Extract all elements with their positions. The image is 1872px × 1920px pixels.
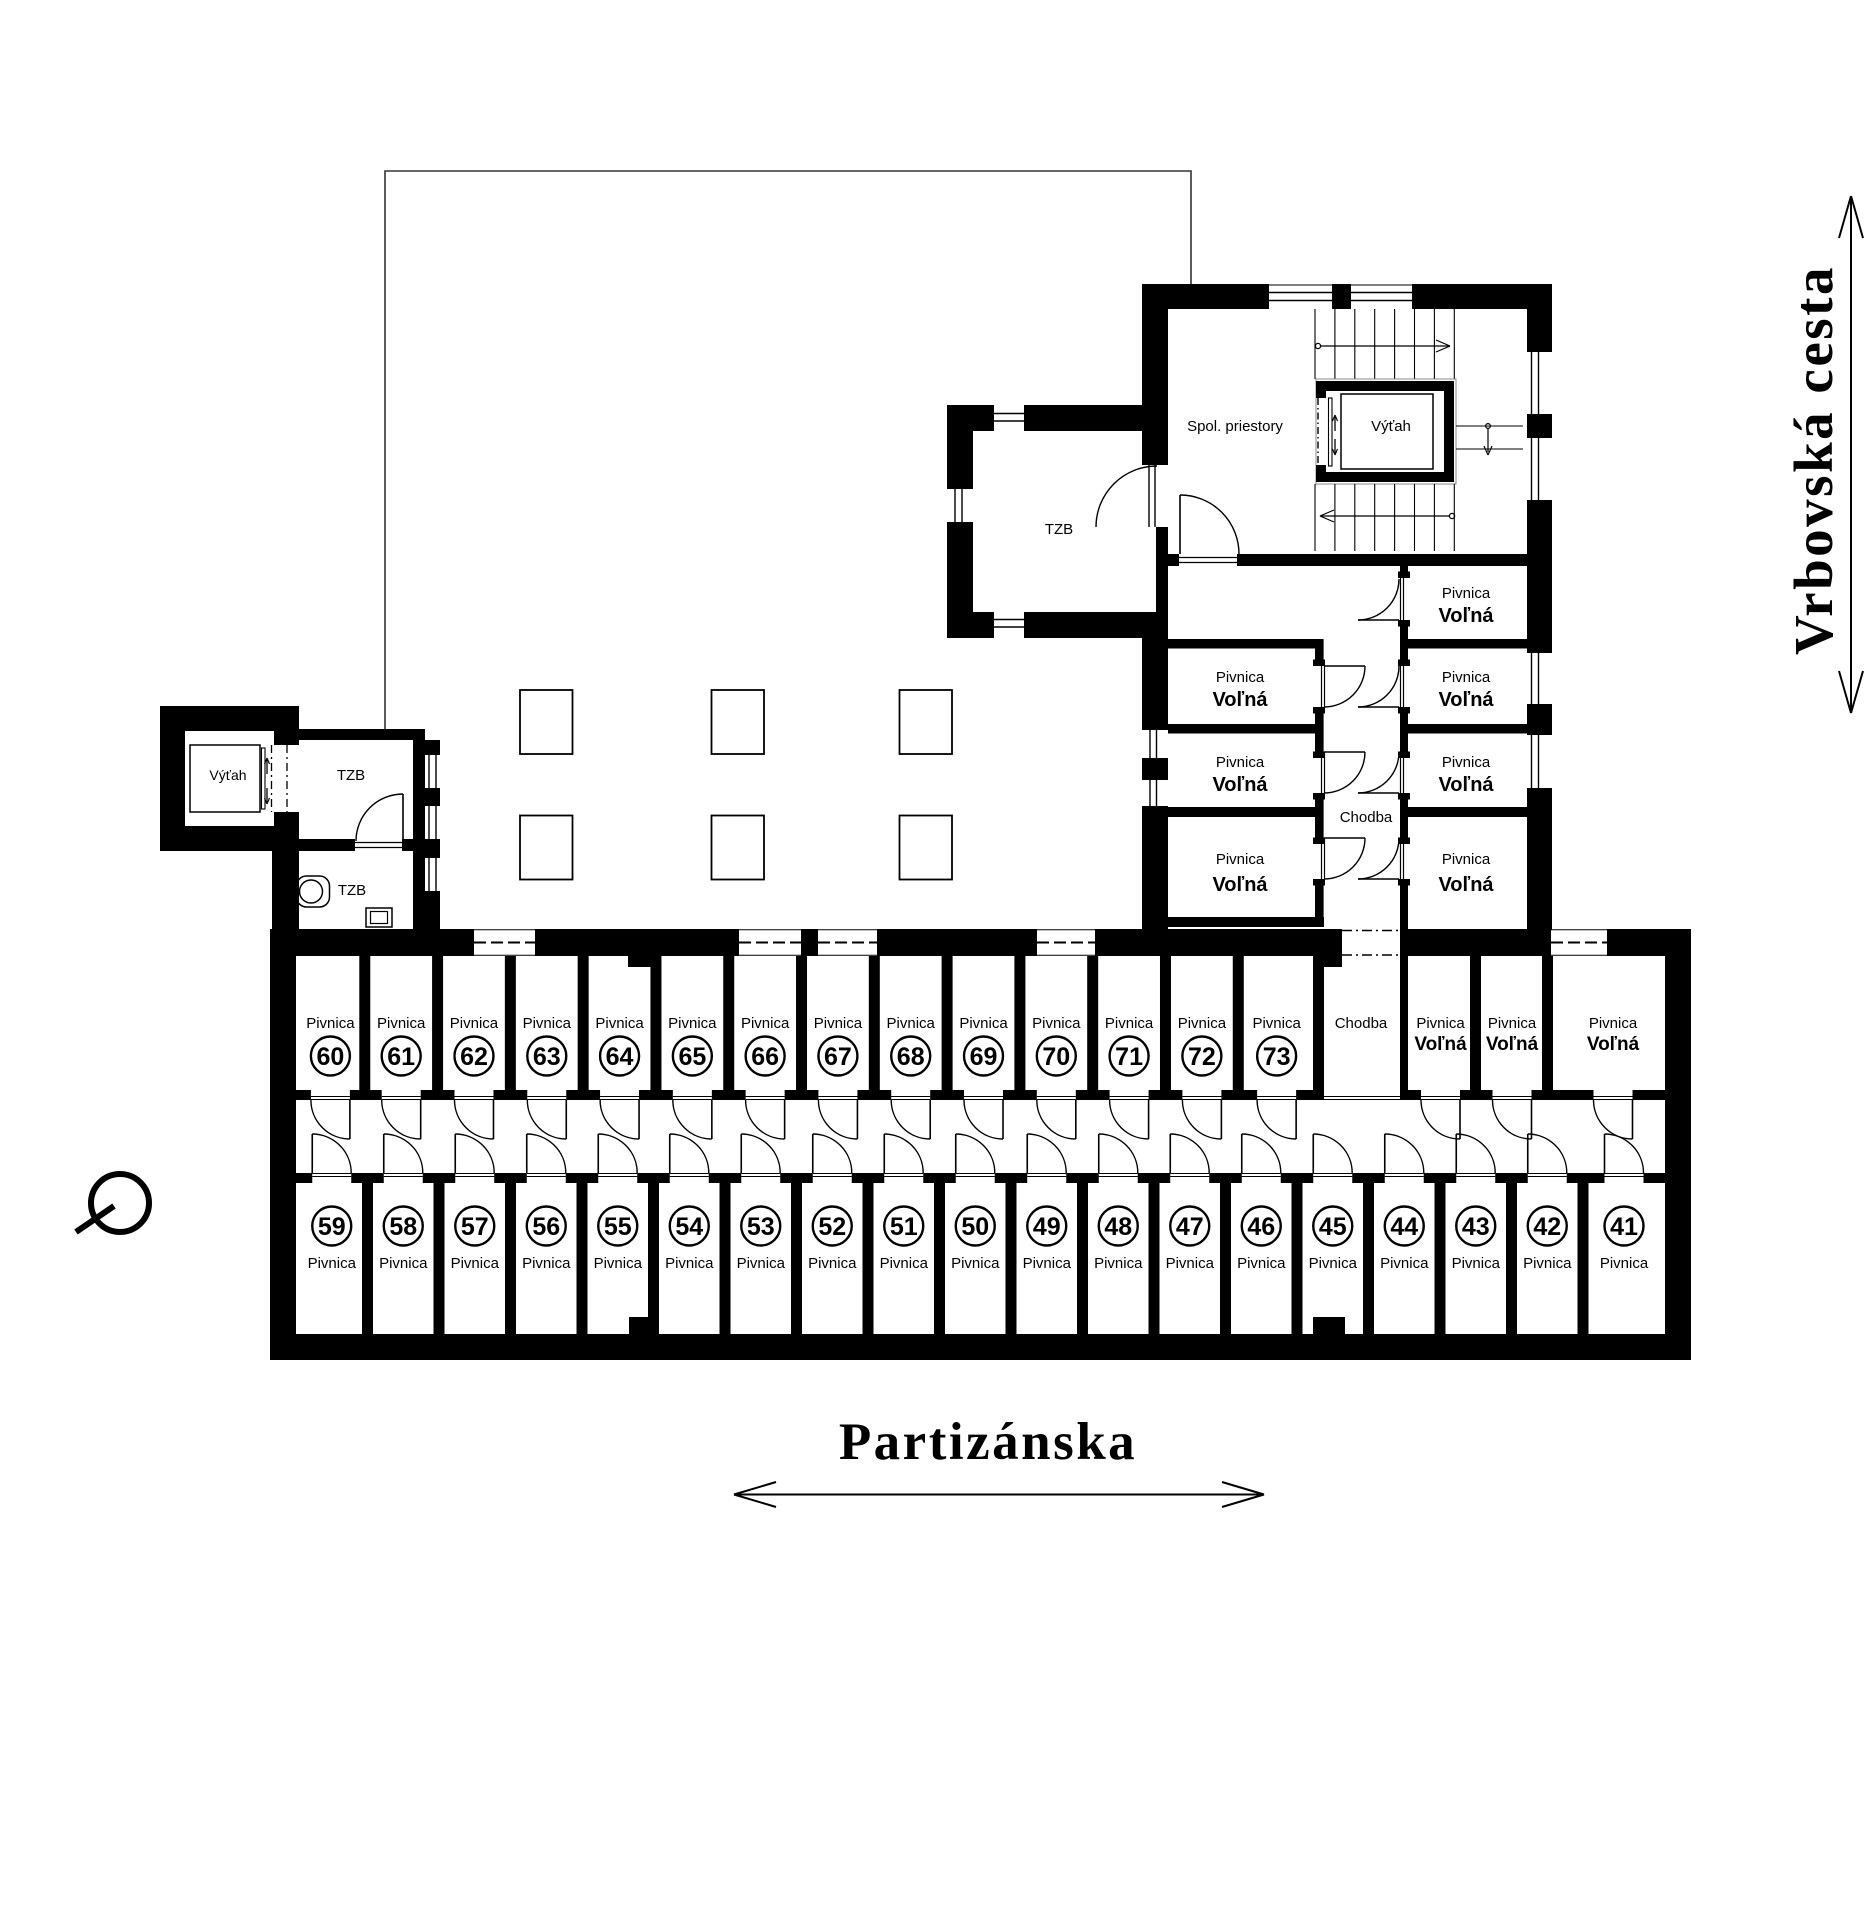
- svg-text:Voľná: Voľná: [1212, 689, 1268, 711]
- svg-text:45: 45: [1319, 1213, 1347, 1241]
- svg-text:66: 66: [751, 1043, 779, 1071]
- svg-text:51: 51: [890, 1213, 918, 1241]
- svg-text:Pivnica: Pivnica: [1032, 1015, 1081, 1032]
- svg-text:69: 69: [970, 1043, 998, 1071]
- svg-text:47: 47: [1176, 1213, 1204, 1241]
- svg-text:50: 50: [961, 1213, 989, 1241]
- svg-text:Voľná: Voľná: [1438, 605, 1494, 627]
- svg-text:Vrbovská cesta: Vrbovská cesta: [1783, 265, 1844, 655]
- svg-text:54: 54: [675, 1213, 703, 1241]
- svg-text:Pivnica: Pivnica: [880, 1255, 929, 1272]
- svg-text:Výťah: Výťah: [209, 767, 246, 783]
- svg-text:Pivnica: Pivnica: [522, 1255, 571, 1272]
- svg-text:Pivnica: Pivnica: [1309, 1255, 1358, 1272]
- svg-text:55: 55: [604, 1213, 632, 1241]
- svg-text:Voľná: Voľná: [1438, 874, 1494, 896]
- svg-text:Pivnica: Pivnica: [451, 1255, 500, 1272]
- svg-text:43: 43: [1462, 1213, 1490, 1241]
- svg-text:Pivnica: Pivnica: [1094, 1255, 1143, 1272]
- svg-text:Pivnica: Pivnica: [1452, 1255, 1501, 1272]
- svg-text:Pivnica: Pivnica: [379, 1255, 428, 1272]
- svg-text:Pivnica: Pivnica: [887, 1015, 936, 1032]
- svg-text:64: 64: [606, 1043, 634, 1071]
- svg-text:Pivnica: Pivnica: [1166, 1255, 1215, 1272]
- svg-text:41: 41: [1610, 1213, 1638, 1241]
- svg-text:73: 73: [1263, 1043, 1291, 1071]
- svg-text:67: 67: [824, 1043, 852, 1071]
- svg-text:Pivnica: Pivnica: [1442, 585, 1491, 602]
- svg-text:Chodba: Chodba: [1340, 809, 1393, 826]
- svg-text:Voľná: Voľná: [1486, 1034, 1539, 1055]
- svg-text:TZB: TZB: [338, 882, 366, 899]
- svg-text:Pivnica: Pivnica: [808, 1255, 857, 1272]
- svg-text:Pivnica: Pivnica: [665, 1255, 714, 1272]
- svg-text:Pivnica: Pivnica: [594, 1255, 643, 1272]
- svg-text:Pivnica: Pivnica: [450, 1015, 499, 1032]
- svg-text:Pivnica: Pivnica: [668, 1015, 717, 1032]
- svg-text:Pivnica: Pivnica: [814, 1015, 863, 1032]
- svg-text:53: 53: [747, 1213, 775, 1241]
- svg-text:Pivnica: Pivnica: [1216, 851, 1265, 868]
- svg-text:70: 70: [1042, 1043, 1070, 1071]
- svg-text:Partizánska: Partizánska: [839, 1413, 1137, 1471]
- svg-text:65: 65: [678, 1043, 706, 1071]
- svg-text:Pivnica: Pivnica: [308, 1255, 357, 1272]
- svg-text:42: 42: [1533, 1213, 1561, 1241]
- svg-text:Voľná: Voľná: [1438, 689, 1494, 711]
- svg-text:58: 58: [389, 1213, 417, 1241]
- svg-text:Pivnica: Pivnica: [523, 1015, 572, 1032]
- svg-text:Pivnica: Pivnica: [595, 1015, 644, 1032]
- svg-text:Chodba: Chodba: [1335, 1015, 1388, 1032]
- svg-text:Pivnica: Pivnica: [1023, 1255, 1072, 1272]
- svg-text:57: 57: [461, 1213, 489, 1241]
- svg-text:Pivnica: Pivnica: [1488, 1015, 1537, 1032]
- svg-text:56: 56: [532, 1213, 560, 1241]
- svg-text:Pivnica: Pivnica: [737, 1255, 786, 1272]
- svg-text:Pivnica: Pivnica: [1589, 1015, 1638, 1032]
- svg-text:TZB: TZB: [337, 767, 365, 784]
- svg-text:Pivnica: Pivnica: [959, 1015, 1008, 1032]
- svg-text:60: 60: [316, 1043, 344, 1071]
- svg-text:62: 62: [460, 1043, 488, 1071]
- svg-text:72: 72: [1188, 1043, 1216, 1071]
- svg-text:48: 48: [1104, 1213, 1132, 1241]
- svg-text:63: 63: [533, 1043, 561, 1071]
- svg-text:Voľná: Voľná: [1414, 1034, 1467, 1055]
- svg-text:Pivnica: Pivnica: [1216, 754, 1265, 771]
- svg-text:Voľná: Voľná: [1587, 1034, 1640, 1055]
- svg-text:44: 44: [1390, 1213, 1418, 1241]
- svg-text:Pivnica: Pivnica: [1237, 1255, 1286, 1272]
- svg-text:Pivnica: Pivnica: [1600, 1255, 1649, 1272]
- svg-text:Pivnica: Pivnica: [1523, 1255, 1572, 1272]
- svg-text:46: 46: [1247, 1213, 1275, 1241]
- svg-text:71: 71: [1115, 1043, 1143, 1071]
- svg-text:Pivnica: Pivnica: [1105, 1015, 1154, 1032]
- svg-text:Výťah: Výťah: [1371, 418, 1411, 435]
- svg-text:Pivnica: Pivnica: [1252, 1015, 1301, 1032]
- svg-text:Pivnica: Pivnica: [1178, 1015, 1227, 1032]
- svg-text:Pivnica: Pivnica: [741, 1015, 790, 1032]
- svg-text:Pivnica: Pivnica: [1216, 669, 1265, 686]
- svg-text:Voľná: Voľná: [1212, 874, 1268, 896]
- svg-text:Pivnica: Pivnica: [1442, 669, 1491, 686]
- svg-text:Pivnica: Pivnica: [306, 1015, 355, 1032]
- svg-text:Pivnica: Pivnica: [1442, 754, 1491, 771]
- svg-text:61: 61: [387, 1043, 415, 1071]
- svg-text:Pivnica: Pivnica: [1416, 1015, 1465, 1032]
- svg-text:52: 52: [818, 1213, 846, 1241]
- svg-text:Pivnica: Pivnica: [1380, 1255, 1429, 1272]
- svg-text:Voľná: Voľná: [1212, 774, 1268, 796]
- svg-text:49: 49: [1033, 1213, 1061, 1241]
- svg-text:Pivnica: Pivnica: [1442, 851, 1491, 868]
- svg-text:Pivnica: Pivnica: [377, 1015, 426, 1032]
- svg-text:68: 68: [897, 1043, 925, 1071]
- svg-text:Voľná: Voľná: [1438, 774, 1494, 796]
- svg-text:59: 59: [318, 1213, 346, 1241]
- svg-text:TZB: TZB: [1045, 521, 1073, 538]
- svg-text:Spol. priestory: Spol. priestory: [1187, 418, 1283, 435]
- svg-text:Pivnica: Pivnica: [951, 1255, 1000, 1272]
